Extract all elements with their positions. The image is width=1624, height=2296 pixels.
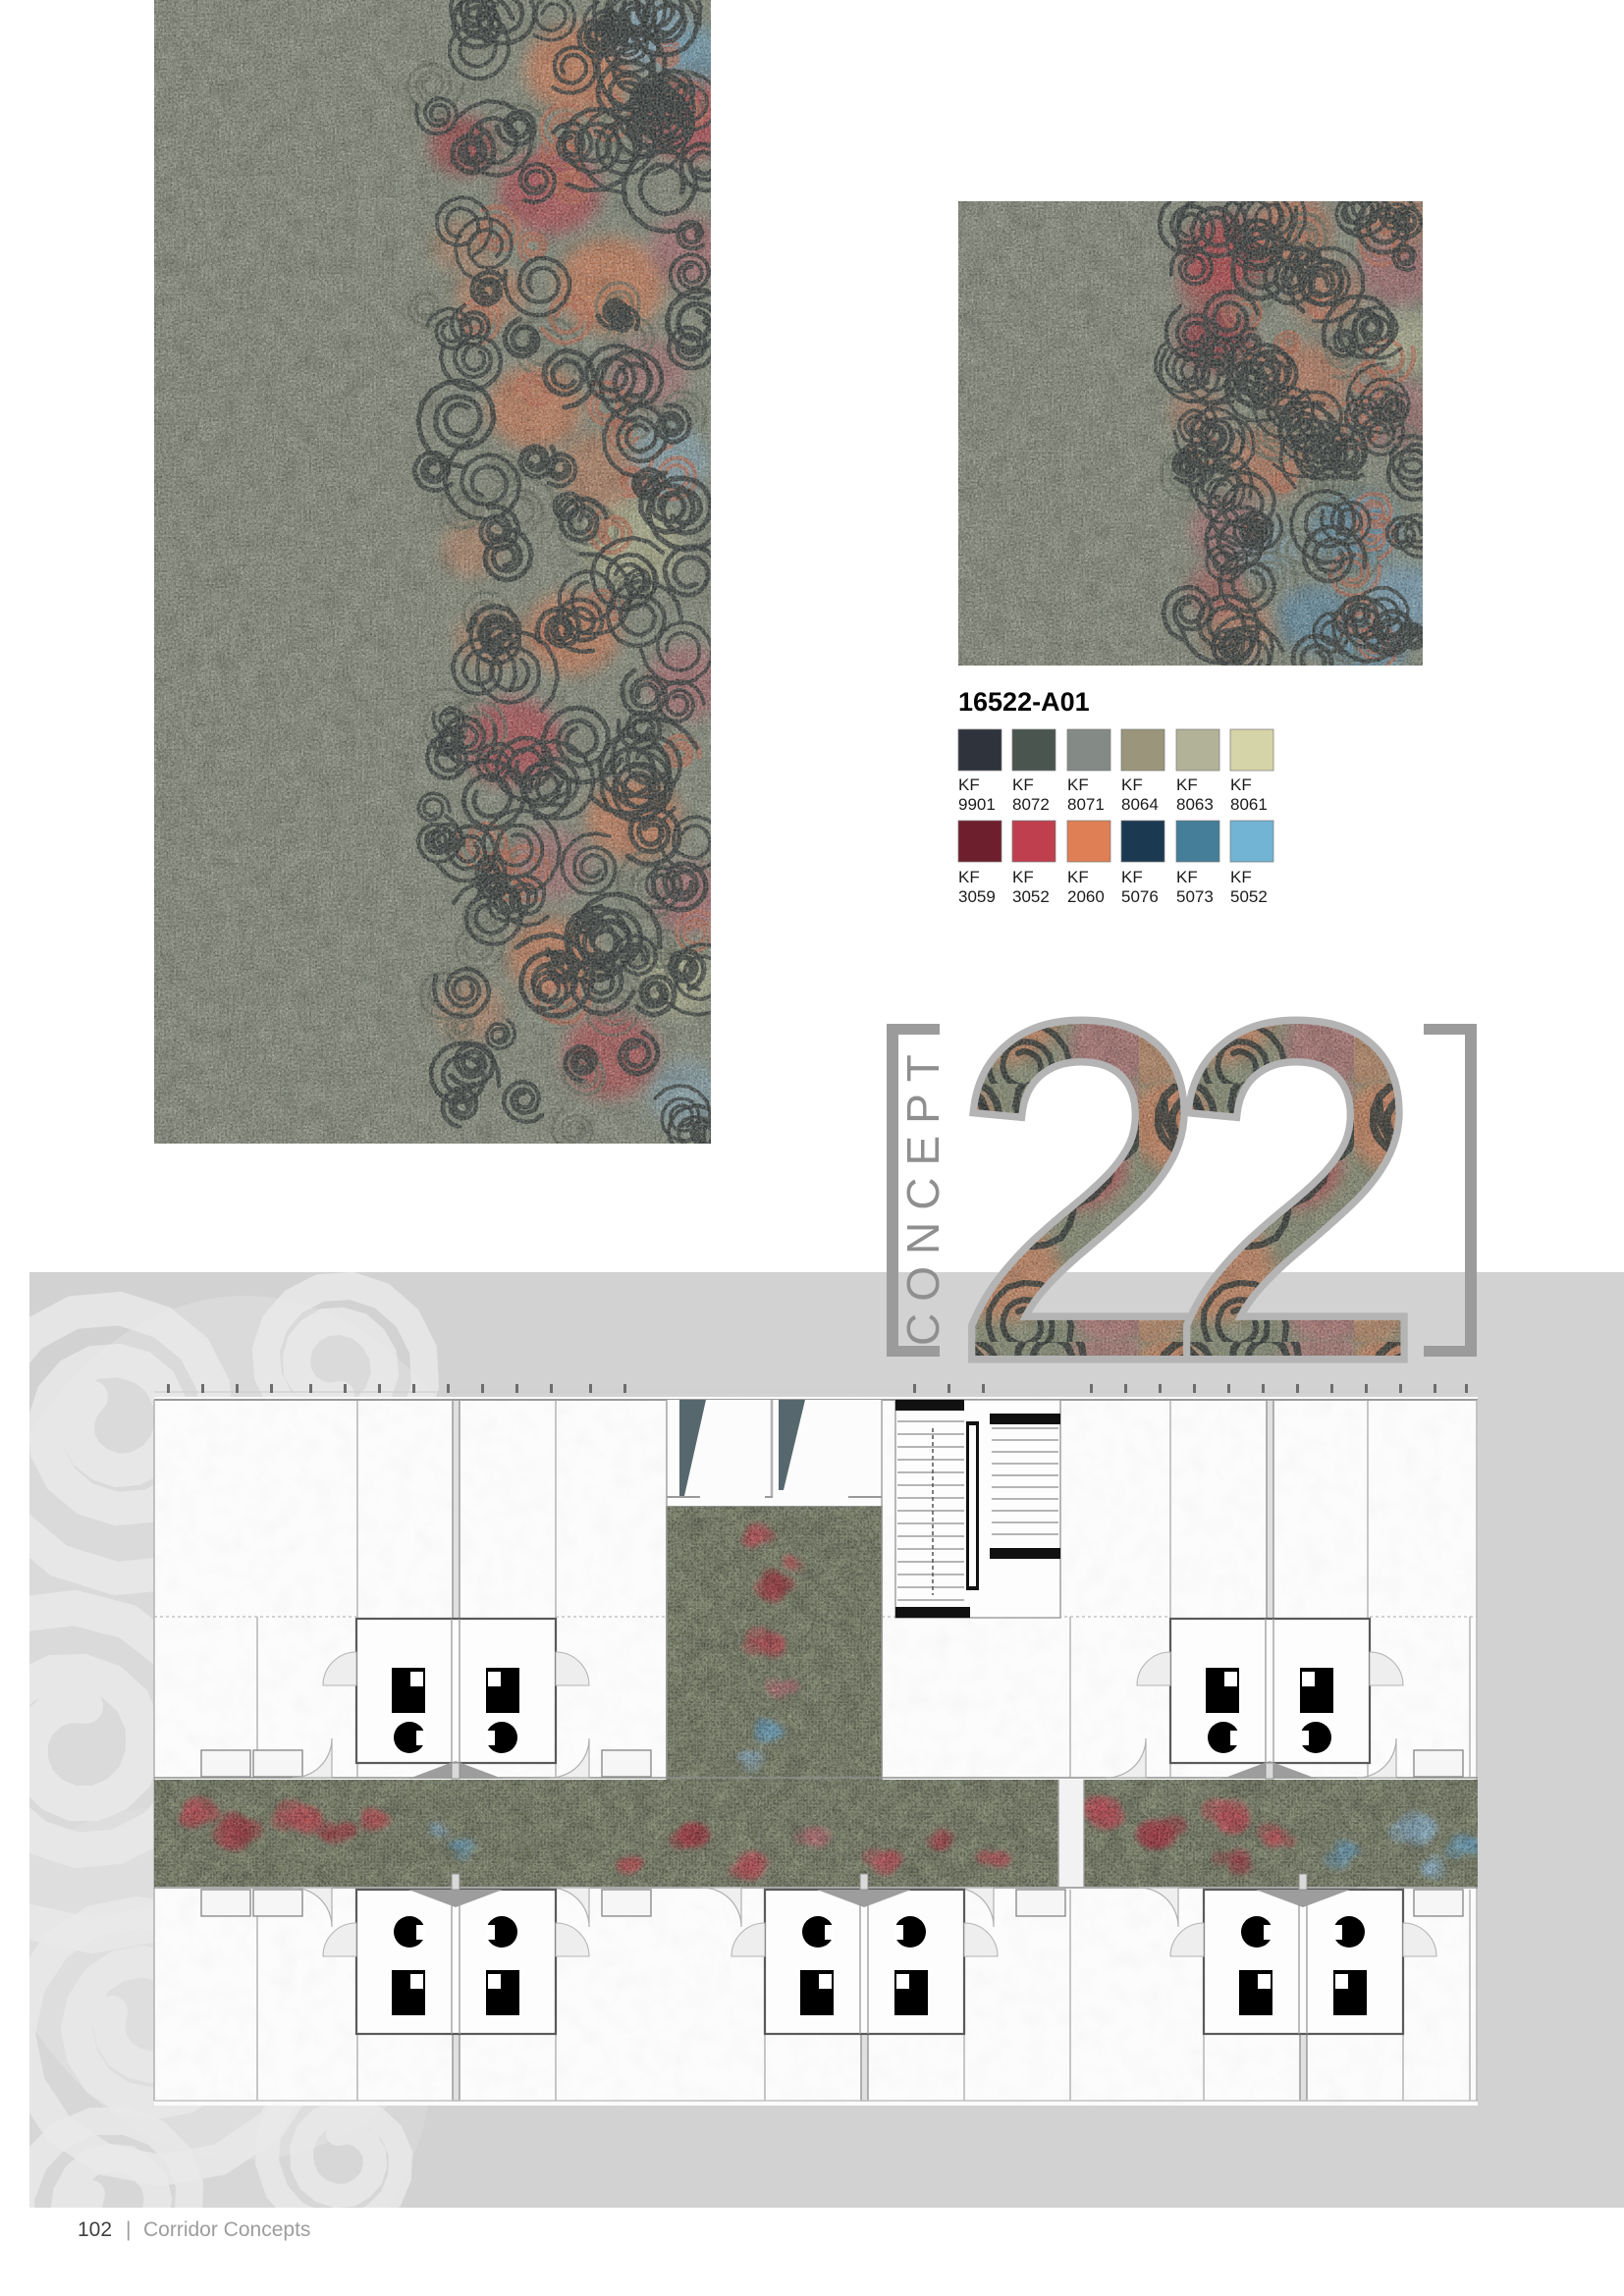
svg-text:CONCEPT: CONCEPT (897, 1042, 948, 1346)
svg-text:8063: 8063 (1176, 795, 1214, 814)
svg-text:KF: KF (1067, 868, 1089, 886)
svg-text:KF: KF (1067, 775, 1089, 794)
svg-text:2060: 2060 (1067, 887, 1105, 906)
svg-text:KF: KF (1230, 775, 1252, 794)
svg-text:KF: KF (1230, 868, 1252, 886)
svg-text:5052: 5052 (1230, 887, 1268, 906)
svg-text:Corridor Concepts: Corridor Concepts (143, 2218, 310, 2241)
svg-text:KF: KF (1121, 868, 1143, 886)
svg-text:KF: KF (1012, 868, 1034, 886)
svg-text:8071: 8071 (1067, 795, 1105, 814)
svg-text:KF: KF (1012, 775, 1034, 794)
svg-text:16522-A01: 16522-A01 (958, 687, 1090, 717)
svg-text:KF: KF (958, 868, 980, 886)
svg-text:9901: 9901 (958, 795, 996, 814)
svg-text:8072: 8072 (1012, 795, 1050, 814)
svg-text:102: 102 (78, 2218, 112, 2241)
svg-text:KF: KF (1121, 775, 1143, 794)
svg-text:3052: 3052 (1012, 887, 1050, 906)
svg-text:8064: 8064 (1121, 795, 1159, 814)
svg-text:KF: KF (958, 775, 980, 794)
svg-text:|: | (126, 2218, 131, 2241)
svg-text:8061: 8061 (1230, 795, 1268, 814)
svg-text:5073: 5073 (1176, 887, 1214, 906)
svg-text:KF: KF (1176, 775, 1198, 794)
svg-text:5076: 5076 (1121, 887, 1159, 906)
svg-text:3059: 3059 (958, 887, 996, 906)
svg-text:2: 2 (1167, 927, 1424, 1458)
svg-text:KF: KF (1176, 868, 1198, 886)
